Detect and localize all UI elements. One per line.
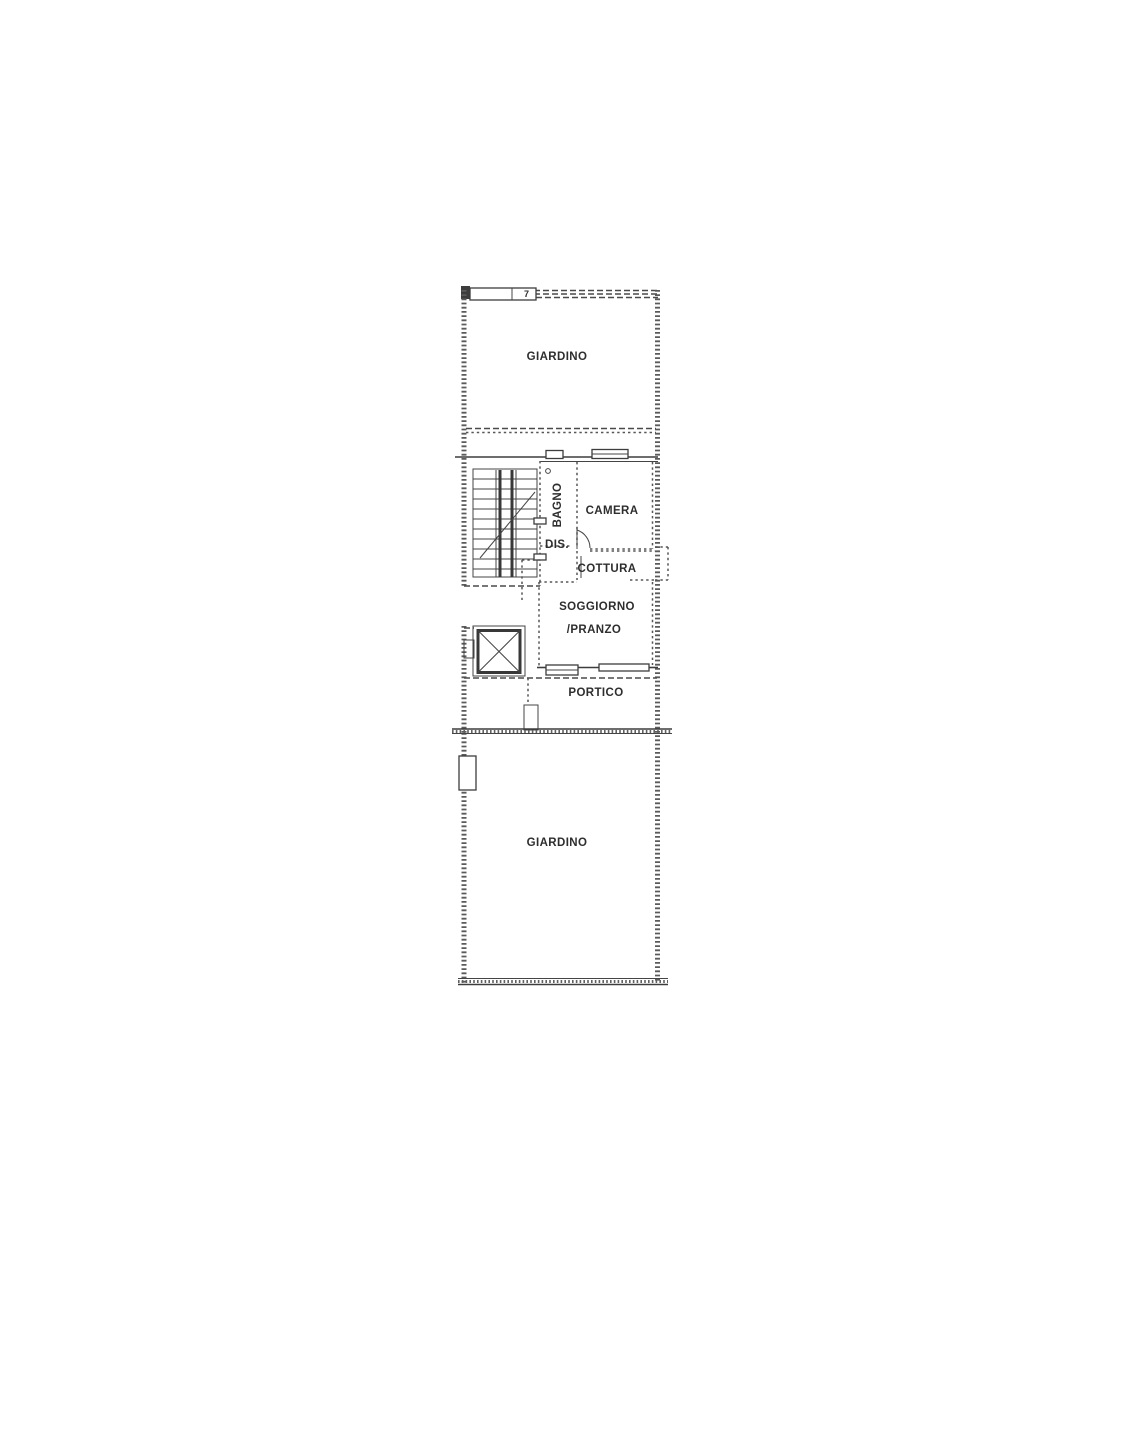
building-north-wall [455, 450, 658, 474]
gate-post [461, 286, 470, 299]
bedroom-door-swing [577, 530, 590, 548]
room-bedroom: CAMERA [577, 462, 653, 549]
elevator [464, 626, 525, 676]
bedroom-label: CAMERA [586, 505, 639, 517]
kitchen-label: COTTURA [577, 563, 636, 575]
room-living: SOGGIORNO /PRANZO [537, 582, 658, 675]
garden-gate-post [459, 756, 476, 790]
garden-bottom-label: GIARDINO [527, 837, 588, 849]
room-garden-top: GIARDINO [466, 351, 656, 433]
wall-vent-mark [534, 554, 546, 560]
floor-plan-page: 7 GIARDINO [0, 0, 1127, 1441]
wall-vent-mark [534, 518, 546, 524]
parcel-perimeter: 7 [458, 286, 668, 985]
stair-outline [473, 469, 537, 577]
living-window [599, 664, 649, 671]
bathroom-window [546, 451, 563, 459]
porch-pillar [524, 705, 538, 730]
gate-number-label: 7 [524, 289, 529, 299]
bathroom-label: BAGNO [552, 483, 564, 528]
staircase [464, 461, 540, 586]
room-kitchen: COTTURA [577, 547, 668, 580]
door-swing-mark [546, 469, 551, 474]
floor-plan-drawing: 7 GIARDINO [0, 0, 1127, 1441]
room-porch: PORTICO [452, 678, 672, 734]
room-garden-bottom: GIARDINO [459, 756, 587, 849]
hallway-label: DIS. [545, 539, 569, 551]
porch-label: PORTICO [568, 687, 623, 699]
stair-direction-line [480, 492, 535, 558]
garden-top-label: GIARDINO [527, 351, 588, 363]
living-label-line2: /PRANZO [567, 624, 622, 636]
living-label-line1: SOGGIORNO [559, 601, 635, 613]
